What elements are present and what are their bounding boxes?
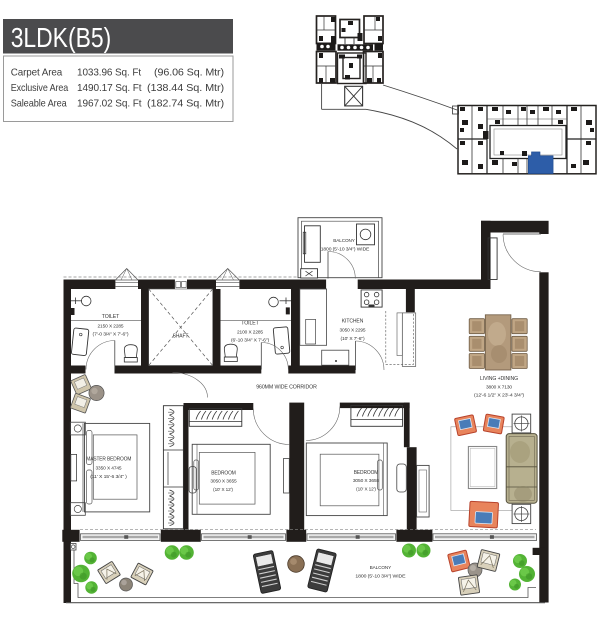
svg-text:Exclusive Area: Exclusive Area [11,83,69,94]
svg-text:(7'-0 3/4" X 7'-6"): (7'-0 3/4" X 7'-6") [93,332,130,337]
svg-text:BALCONY: BALCONY [370,565,392,570]
svg-text:(6'-10 3/4" X 7'-6"): (6'-10 3/4" X 7'-6") [231,338,270,343]
svg-text:(10' X 7'-6"): (10' X 7'-6") [341,336,366,341]
svg-text:(10' X 12'): (10' X 12') [213,487,233,492]
svg-text:(11' X 15'-6 3/4" ): (11' X 15'-6 3/4" ) [90,474,127,479]
svg-text:1033.96 Sq. Ft: 1033.96 Sq. Ft [77,68,141,79]
svg-text:3LDK(B5): 3LDK(B5) [11,22,112,53]
svg-text:1967.02 Sq. Ft: 1967.02 Sq. Ft [77,98,142,109]
svg-text:BALCONY: BALCONY [333,238,355,243]
svg-text:(182.74 Sq. Mtr): (182.74 Sq. Mtr) [147,98,224,109]
svg-text:(12'-6 1/2" X 23'-4 3/4"): (12'-6 1/2" X 23'-4 3/4") [474,393,525,398]
svg-text:TOILET: TOILET [102,314,119,320]
svg-text:3050 X 3655: 3050 X 3655 [353,478,380,483]
svg-text:BEDROOM: BEDROOM [354,470,379,476]
svg-text:1800 (5'-10 3/4") WIDE: 1800 (5'-10 3/4") WIDE [321,246,370,251]
svg-text:Saleable Area: Saleable Area [11,98,67,109]
svg-text:KITCHEN: KITCHEN [342,319,364,325]
svg-text:Carpet Area: Carpet Area [11,68,63,79]
svg-text:BEDROOM: BEDROOM [211,470,236,476]
svg-text:2100 X 2285: 2100 X 2285 [237,330,264,335]
svg-text:LIVING +DINING: LIVING +DINING [480,376,518,382]
svg-text:1490.17 Sq. Ft: 1490.17 Sq. Ft [77,83,142,94]
svg-text:3350 X 4745: 3350 X 4745 [96,465,123,470]
svg-text:(96.06 Sq. Mtr): (96.06 Sq. Mtr) [154,68,224,79]
svg-text:3800 X 7130: 3800 X 7130 [486,384,513,389]
svg-text:TOILET: TOILET [241,321,258,327]
svg-text:3050 X 2295: 3050 X 2295 [340,328,367,333]
svg-text:2150 X 2285: 2150 X 2285 [98,324,125,329]
svg-text:3050 X 3655: 3050 X 3655 [210,479,237,484]
svg-text:(138.44 Sq. Mtr): (138.44 Sq. Mtr) [147,83,224,94]
svg-text:SHAFT: SHAFT [173,334,190,340]
svg-text:(10' X 12'): (10' X 12') [356,487,376,492]
svg-text:1800 (5'-10 3/4") WIDE: 1800 (5'-10 3/4") WIDE [355,573,405,578]
svg-text:960MM WIDE CORRIDOR: 960MM WIDE CORRIDOR [256,385,317,391]
